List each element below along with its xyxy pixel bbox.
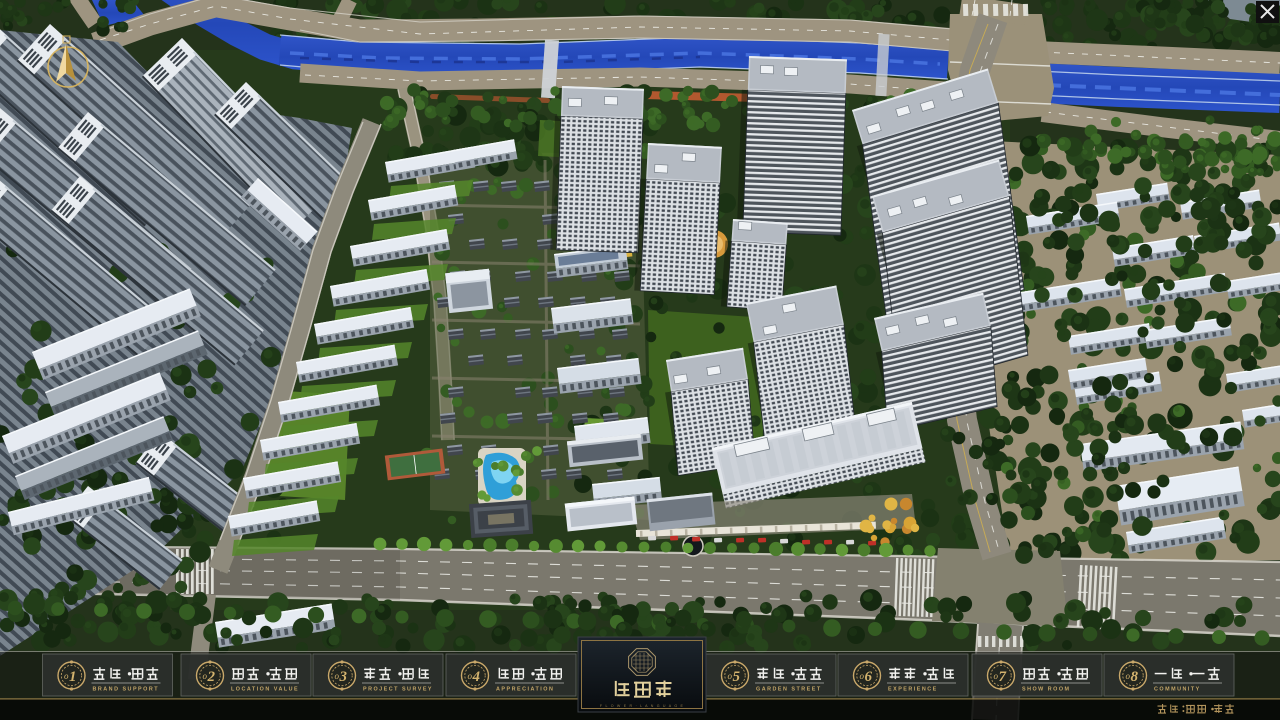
- svg-text:PROJECT SURVEY: PROJECT SURVEY: [363, 686, 433, 692]
- svg-text:3: 3: [339, 669, 348, 685]
- svg-text:BRAND SUPPORT: BRAND SUPPORT: [93, 686, 160, 692]
- svg-text:1: 1: [69, 669, 77, 685]
- svg-text:5: 5: [733, 669, 741, 685]
- svg-text:APPRECIATION: APPRECIATION: [496, 686, 554, 692]
- svg-text:SHOW ROOM: SHOW ROOM: [1022, 686, 1071, 692]
- svg-text:7: 7: [999, 669, 1007, 685]
- svg-text:6: 6: [865, 669, 873, 685]
- svg-text:GARDEN STREET: GARDEN STREET: [756, 686, 822, 692]
- svg-text:8: 8: [1131, 669, 1139, 685]
- svg-text:COMMUNITY: COMMUNITY: [1154, 686, 1201, 692]
- svg-text:4: 4: [472, 669, 481, 685]
- svg-text:LOCATION VALUE: LOCATION VALUE: [231, 686, 299, 692]
- svg-text:EXPERIENCE: EXPERIENCE: [888, 686, 938, 692]
- svg-text:F L O W E R · L A N G U A G E: F L O W E R · L A N G U A G E: [600, 704, 684, 708]
- svg-text:2: 2: [207, 669, 216, 685]
